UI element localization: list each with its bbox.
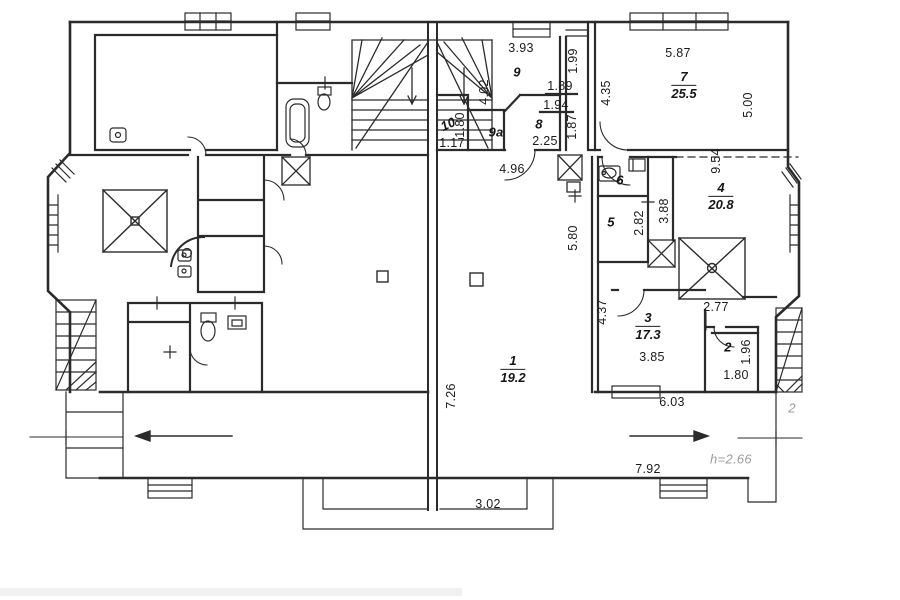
dimension-label: 4.35 [599, 80, 613, 106]
dimension-label: 3.88 [657, 198, 671, 224]
dimension-label: 4.02 [477, 79, 491, 105]
room-number-label: 6 [616, 173, 624, 188]
room-number-label: 9a [488, 125, 503, 140]
scan-artifact [0, 588, 462, 596]
dimension-label: 7.26 [444, 383, 458, 409]
dimension-label: 7.92 [635, 462, 661, 476]
dimension-label: 6.03 [659, 395, 685, 409]
plan-labels: 3.931.994.021.891.941.872.254.355.875.00… [0, 0, 900, 600]
dimension-label: 5.87 [665, 46, 691, 60]
dimension-label: 4.96 [499, 162, 525, 176]
room-number-label: 9 [513, 65, 521, 80]
dimension-label: 3.85 [639, 350, 665, 364]
room-number-label: 5 [607, 215, 615, 230]
room-area-label: 119.2 [500, 354, 525, 384]
annotation-label: h=2.66 [710, 452, 752, 467]
annotation-label: 2 [788, 401, 796, 416]
dimension-label: 9.54 [709, 148, 723, 174]
dimension-label: 5.80 [566, 225, 580, 251]
room-area-label: 725.5 [671, 70, 696, 100]
room-number-label: 8 [535, 117, 543, 132]
dimension-label: 1.94 [543, 98, 569, 112]
dimension-label: 1.99 [566, 48, 580, 74]
dimension-label: 3.93 [508, 41, 534, 55]
dimension-label: 1.89 [547, 79, 573, 93]
dimension-label: 1.87 [565, 114, 579, 140]
room-area-label: 420.8 [708, 181, 733, 211]
room-number-label: 2 [724, 340, 732, 355]
dimension-label: 4.37 [595, 299, 609, 325]
dimension-label: 2.77 [703, 300, 729, 314]
dimension-label: 2.25 [532, 134, 558, 148]
dimension-label: 3.02 [475, 497, 501, 511]
floorplan-page: 3.931.994.021.891.941.872.254.355.875.00… [0, 0, 900, 600]
dimension-label: 1.96 [739, 339, 753, 365]
dimension-label: 1.80 [723, 368, 749, 382]
room-area-label: 317.3 [635, 311, 660, 341]
dimension-label: 1.17 [439, 136, 465, 150]
dimension-label: 2.82 [632, 210, 646, 236]
dimension-label: 5.00 [741, 92, 755, 118]
